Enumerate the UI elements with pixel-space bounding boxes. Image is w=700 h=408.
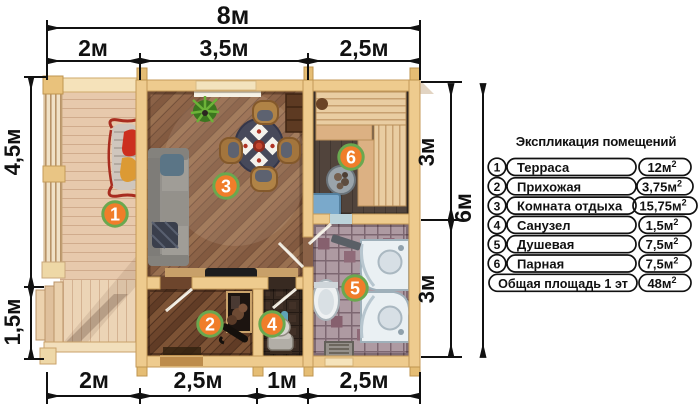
svg-text:Экспликация помещений: Экспликация помещений: [516, 134, 677, 149]
svg-text:3м: 3м: [414, 138, 439, 167]
svg-text:12м2: 12м2: [647, 159, 676, 175]
svg-text:1,5м2: 1,5м2: [646, 217, 679, 233]
svg-text:2,5м: 2,5м: [340, 35, 389, 61]
svg-text:1,5м: 1,5м: [0, 299, 25, 346]
svg-text:4,5м: 4,5м: [0, 129, 25, 176]
svg-text:3м: 3м: [414, 275, 439, 304]
svg-text:2: 2: [205, 315, 215, 335]
svg-text:3,5м: 3,5м: [200, 35, 249, 61]
svg-text:1м: 1м: [267, 367, 297, 393]
svg-text:1: 1: [494, 161, 501, 175]
svg-text:Общая площадь 1 эт: Общая площадь 1 эт: [498, 277, 628, 291]
svg-text:3,75м2: 3,75м2: [642, 178, 682, 194]
svg-text:3: 3: [494, 199, 501, 213]
svg-text:8м: 8м: [217, 2, 249, 30]
svg-text:1: 1: [110, 205, 120, 225]
svg-text:6м: 6м: [450, 193, 476, 223]
svg-text:Санузел: Санузел: [517, 218, 570, 233]
svg-text:3: 3: [221, 177, 231, 197]
svg-text:15,75м2: 15,75м2: [639, 198, 686, 214]
svg-text:Парная: Парная: [517, 257, 564, 272]
svg-text:5: 5: [350, 279, 360, 299]
svg-text:6: 6: [346, 148, 356, 168]
svg-text:2м: 2м: [78, 35, 108, 61]
svg-text:5: 5: [494, 238, 501, 252]
svg-text:4: 4: [267, 315, 277, 335]
svg-text:Прихожая: Прихожая: [517, 179, 581, 194]
svg-text:6: 6: [494, 257, 501, 271]
svg-text:2,5м: 2,5м: [340, 367, 389, 393]
svg-text:Комната отдыха: Комната отдыха: [517, 199, 623, 214]
svg-text:7,5м2: 7,5м2: [646, 256, 679, 272]
svg-text:2,5м: 2,5м: [174, 367, 223, 393]
svg-text:Душевая: Душевая: [517, 237, 574, 252]
svg-text:2м: 2м: [79, 367, 109, 393]
svg-text:48м2: 48м2: [647, 275, 676, 291]
svg-text:2: 2: [494, 180, 501, 194]
svg-text:4: 4: [494, 219, 501, 233]
svg-text:Терраса: Терраса: [517, 160, 570, 175]
svg-text:7,5м2: 7,5м2: [646, 236, 679, 252]
